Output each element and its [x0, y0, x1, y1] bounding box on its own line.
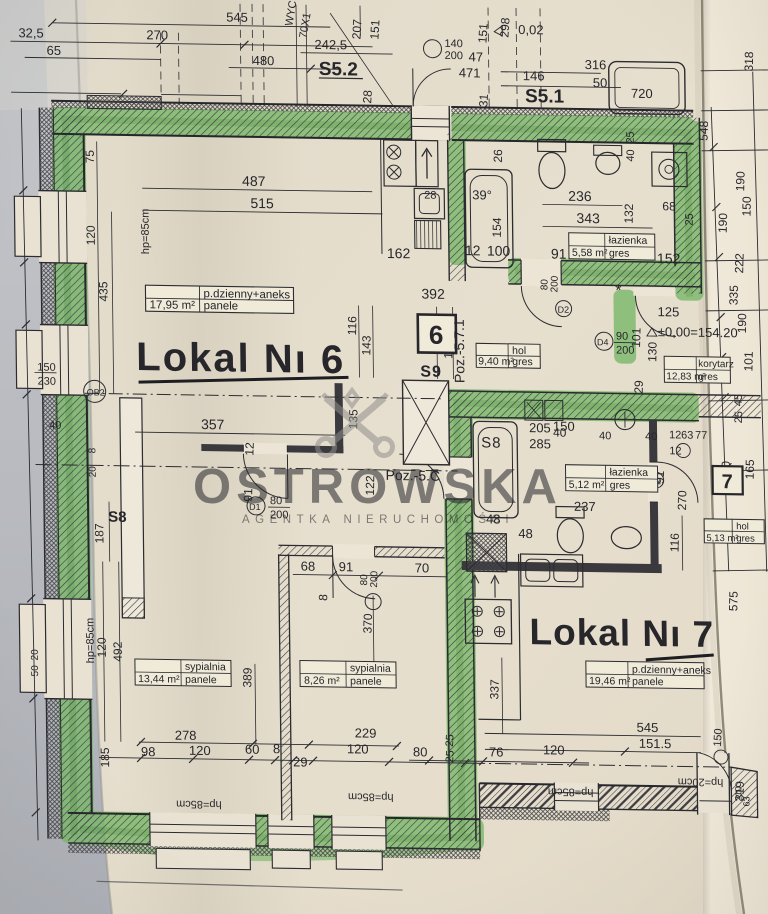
svg-text:25: 25	[444, 734, 457, 747]
svg-text:91: 91	[339, 559, 354, 574]
svg-text:OSTROWSKA: OSTROWSKA	[193, 460, 562, 514]
svg-text:165: 165	[743, 459, 757, 480]
svg-text:Lokal Nı 6: Lokal Nı 6	[136, 335, 345, 382]
svg-text:45: 45	[733, 394, 745, 407]
svg-text:S5.2: S5.2	[319, 59, 358, 81]
svg-text:68: 68	[301, 559, 316, 574]
svg-text:*: *	[615, 282, 621, 299]
svg-text:25: 25	[733, 411, 745, 424]
svg-text:32,5: 32,5	[18, 25, 43, 40]
svg-text:7: 7	[722, 471, 733, 493]
svg-text:D4: D4	[597, 337, 609, 347]
svg-text:492: 492	[111, 641, 125, 662]
svg-text:75: 75	[83, 150, 97, 164]
svg-text:435: 435	[96, 281, 110, 302]
svg-text:720: 720	[631, 86, 653, 101]
svg-text:hp=85cm: hp=85cm	[348, 790, 394, 803]
svg-text:120: 120	[84, 225, 98, 246]
svg-text:91: 91	[551, 245, 567, 261]
svg-text:hp=85cm: hp=85cm	[139, 209, 152, 255]
svg-text:80: 80	[413, 744, 428, 759]
svg-text:40: 40	[49, 420, 61, 432]
svg-text:12: 12	[242, 442, 256, 456]
svg-text:152: 152	[657, 250, 681, 266]
svg-text:S9: S9	[420, 363, 442, 380]
svg-text:98: 98	[141, 744, 156, 759]
svg-text:229: 229	[355, 725, 377, 740]
svg-text:OB2: OB2	[87, 387, 105, 397]
svg-text:S8: S8	[108, 509, 127, 526]
svg-text:298: 298	[497, 17, 512, 38]
svg-text:25: 25	[444, 750, 457, 763]
svg-text:200: 200	[445, 50, 464, 62]
svg-text:25: 25	[625, 131, 637, 144]
svg-text:hp=85cm: hp=85cm	[176, 798, 222, 811]
svg-text:hp=85cm: hp=85cm	[548, 785, 594, 798]
svg-text:343: 343	[576, 210, 600, 226]
svg-text:151: 151	[367, 19, 382, 40]
svg-text:hp=85cm: hp=85cm	[84, 618, 97, 664]
svg-text:40: 40	[599, 430, 611, 442]
svg-text:gres: gres	[736, 533, 755, 544]
svg-text:sypialnia: sypialnia	[350, 662, 391, 675]
svg-text:20: 20	[30, 649, 41, 661]
svg-text:hp=20cm: hp=20cm	[678, 775, 724, 788]
svg-text:5,58 m²: 5,58 m²	[572, 247, 608, 260]
svg-text:200: 200	[369, 570, 380, 588]
svg-text:panele: panele	[350, 675, 382, 687]
svg-text:19,46 m²: 19,46 m²	[589, 675, 631, 688]
svg-text:63: 63	[681, 429, 693, 441]
svg-text:hol: hol	[736, 521, 749, 532]
svg-text:Poz.-5.7.1: Poz.-5.7.1	[451, 319, 468, 383]
svg-text:316: 316	[585, 57, 607, 72]
svg-text:151.5: 151.5	[639, 736, 672, 752]
svg-text:190: 190	[716, 212, 730, 233]
svg-text:korytarz: korytarz	[698, 359, 734, 371]
svg-text:187: 187	[92, 523, 106, 544]
svg-text:panele: panele	[632, 676, 664, 688]
svg-text:575: 575	[726, 590, 740, 611]
svg-text:8: 8	[316, 593, 330, 601]
svg-text:370: 370	[361, 613, 375, 634]
svg-text:242,5: 242,5	[314, 37, 347, 53]
svg-text:140: 140	[444, 38, 463, 50]
svg-text:150: 150	[739, 196, 753, 217]
svg-text:17,95 m²: 17,95 m²	[150, 299, 196, 312]
svg-text:39°: 39°	[472, 187, 492, 202]
svg-text:76: 76	[489, 744, 504, 759]
svg-text:545: 545	[637, 720, 659, 735]
svg-text:40: 40	[625, 149, 637, 162]
svg-text:70: 70	[415, 560, 430, 575]
svg-text:319: 319	[732, 781, 746, 802]
svg-text:9,40 m²: 9,40 m²	[478, 355, 514, 368]
svg-text:487: 487	[242, 173, 266, 189]
svg-text:40: 40	[553, 425, 567, 439]
svg-text:237: 237	[574, 499, 596, 514]
svg-text:222: 222	[732, 253, 746, 274]
svg-text:270: 270	[675, 490, 689, 511]
svg-text:panele: panele	[185, 674, 217, 686]
svg-text:łazienka: łazienka	[609, 234, 648, 247]
svg-text:357: 357	[201, 416, 225, 432]
svg-text:515: 515	[250, 195, 274, 211]
svg-text:29: 29	[293, 754, 308, 769]
svg-text:125: 125	[658, 304, 680, 319]
svg-text:28: 28	[360, 89, 375, 104]
svg-text:270: 270	[146, 27, 168, 42]
svg-text:335: 335	[727, 285, 741, 306]
svg-text:100: 100	[487, 243, 511, 259]
svg-text:AGENTKA NIERUCHOMOŚCI: AGENTKA NIERUCHOMOŚCI	[242, 513, 514, 526]
svg-text:31: 31	[476, 93, 491, 108]
svg-text:190: 190	[733, 171, 747, 192]
svg-text:151: 151	[475, 22, 490, 43]
svg-text:Lokal Nı 7: Lokal Nı 7	[529, 611, 714, 655]
svg-text:130: 130	[645, 341, 659, 362]
svg-text:120: 120	[347, 741, 369, 756]
svg-text:8: 8	[273, 741, 280, 756]
svg-text:5,13 m²: 5,13 m²	[706, 533, 738, 544]
svg-text:0,02: 0,02	[518, 22, 543, 37]
svg-text:26: 26	[491, 149, 505, 163]
svg-text:13,44 m²: 13,44 m²	[138, 673, 180, 686]
svg-text:143: 143	[359, 335, 373, 356]
svg-text:gres: gres	[610, 479, 631, 491]
svg-text:29: 29	[632, 380, 646, 394]
svg-text:6: 6	[429, 320, 444, 350]
svg-text:146: 146	[523, 68, 545, 83]
svg-text:389: 389	[240, 667, 254, 688]
svg-text:65: 65	[47, 43, 62, 58]
svg-text:101: 101	[741, 351, 755, 372]
svg-text:łazienka: łazienka	[609, 466, 648, 479]
svg-text:120: 120	[189, 743, 211, 758]
svg-text:60: 60	[245, 742, 260, 757]
svg-text:545: 545	[226, 10, 248, 25]
svg-text:162: 162	[387, 245, 411, 261]
svg-text:12: 12	[669, 445, 681, 457]
svg-text:116: 116	[345, 315, 359, 335]
svg-text:236: 236	[568, 188, 592, 204]
svg-text:5,12 m²: 5,12 m²	[569, 479, 605, 492]
svg-text:90: 90	[616, 330, 628, 342]
svg-text:28: 28	[424, 190, 436, 202]
svg-text:285: 285	[529, 436, 551, 451]
svg-text:392: 392	[421, 285, 445, 301]
svg-text:12: 12	[669, 429, 681, 441]
svg-text:D2: D2	[558, 305, 570, 315]
svg-text:48: 48	[518, 526, 533, 541]
svg-text:gres: gres	[512, 356, 533, 368]
svg-text:150: 150	[37, 362, 56, 374]
svg-text:25: 25	[684, 213, 696, 226]
svg-text:panele: panele	[204, 300, 239, 313]
svg-text:S5.1: S5.1	[525, 86, 565, 108]
svg-text:8,26 m²: 8,26 m²	[304, 675, 340, 688]
svg-text:207: 207	[349, 18, 364, 39]
svg-text:150: 150	[712, 728, 725, 747]
svg-text:278: 278	[175, 728, 197, 743]
svg-text:77: 77	[695, 430, 707, 442]
svg-text:50: 50	[593, 75, 608, 90]
svg-text:480: 480	[253, 53, 275, 68]
svg-text:154: 154	[490, 217, 504, 238]
svg-text:120: 120	[543, 742, 565, 757]
svg-text:20: 20	[88, 466, 99, 478]
svg-text:47: 47	[469, 49, 484, 64]
svg-text:8: 8	[87, 447, 98, 453]
svg-text:12: 12	[465, 242, 481, 258]
svg-text:101: 101	[629, 327, 643, 348]
svg-text:gres: gres	[609, 247, 630, 259]
svg-text:230: 230	[38, 376, 57, 388]
svg-text:205: 205	[529, 420, 551, 435]
svg-text:±0,00=154.20: ±0,00=154.20	[658, 324, 738, 340]
svg-text:200: 200	[549, 275, 560, 293]
svg-text:S8: S8	[481, 434, 502, 451]
svg-text:337: 337	[487, 679, 501, 700]
svg-text:68: 68	[662, 199, 676, 213]
svg-text:116: 116	[668, 532, 682, 552]
svg-text:132: 132	[622, 203, 636, 224]
svg-text:sypialnia: sypialnia	[185, 661, 226, 674]
svg-text:471: 471	[459, 65, 481, 80]
svg-text:548: 548	[697, 120, 711, 141]
svg-text:318: 318	[742, 51, 756, 72]
svg-text:gres: gres	[698, 372, 718, 383]
svg-text:50: 50	[30, 665, 41, 677]
svg-text:40: 40	[645, 431, 657, 443]
